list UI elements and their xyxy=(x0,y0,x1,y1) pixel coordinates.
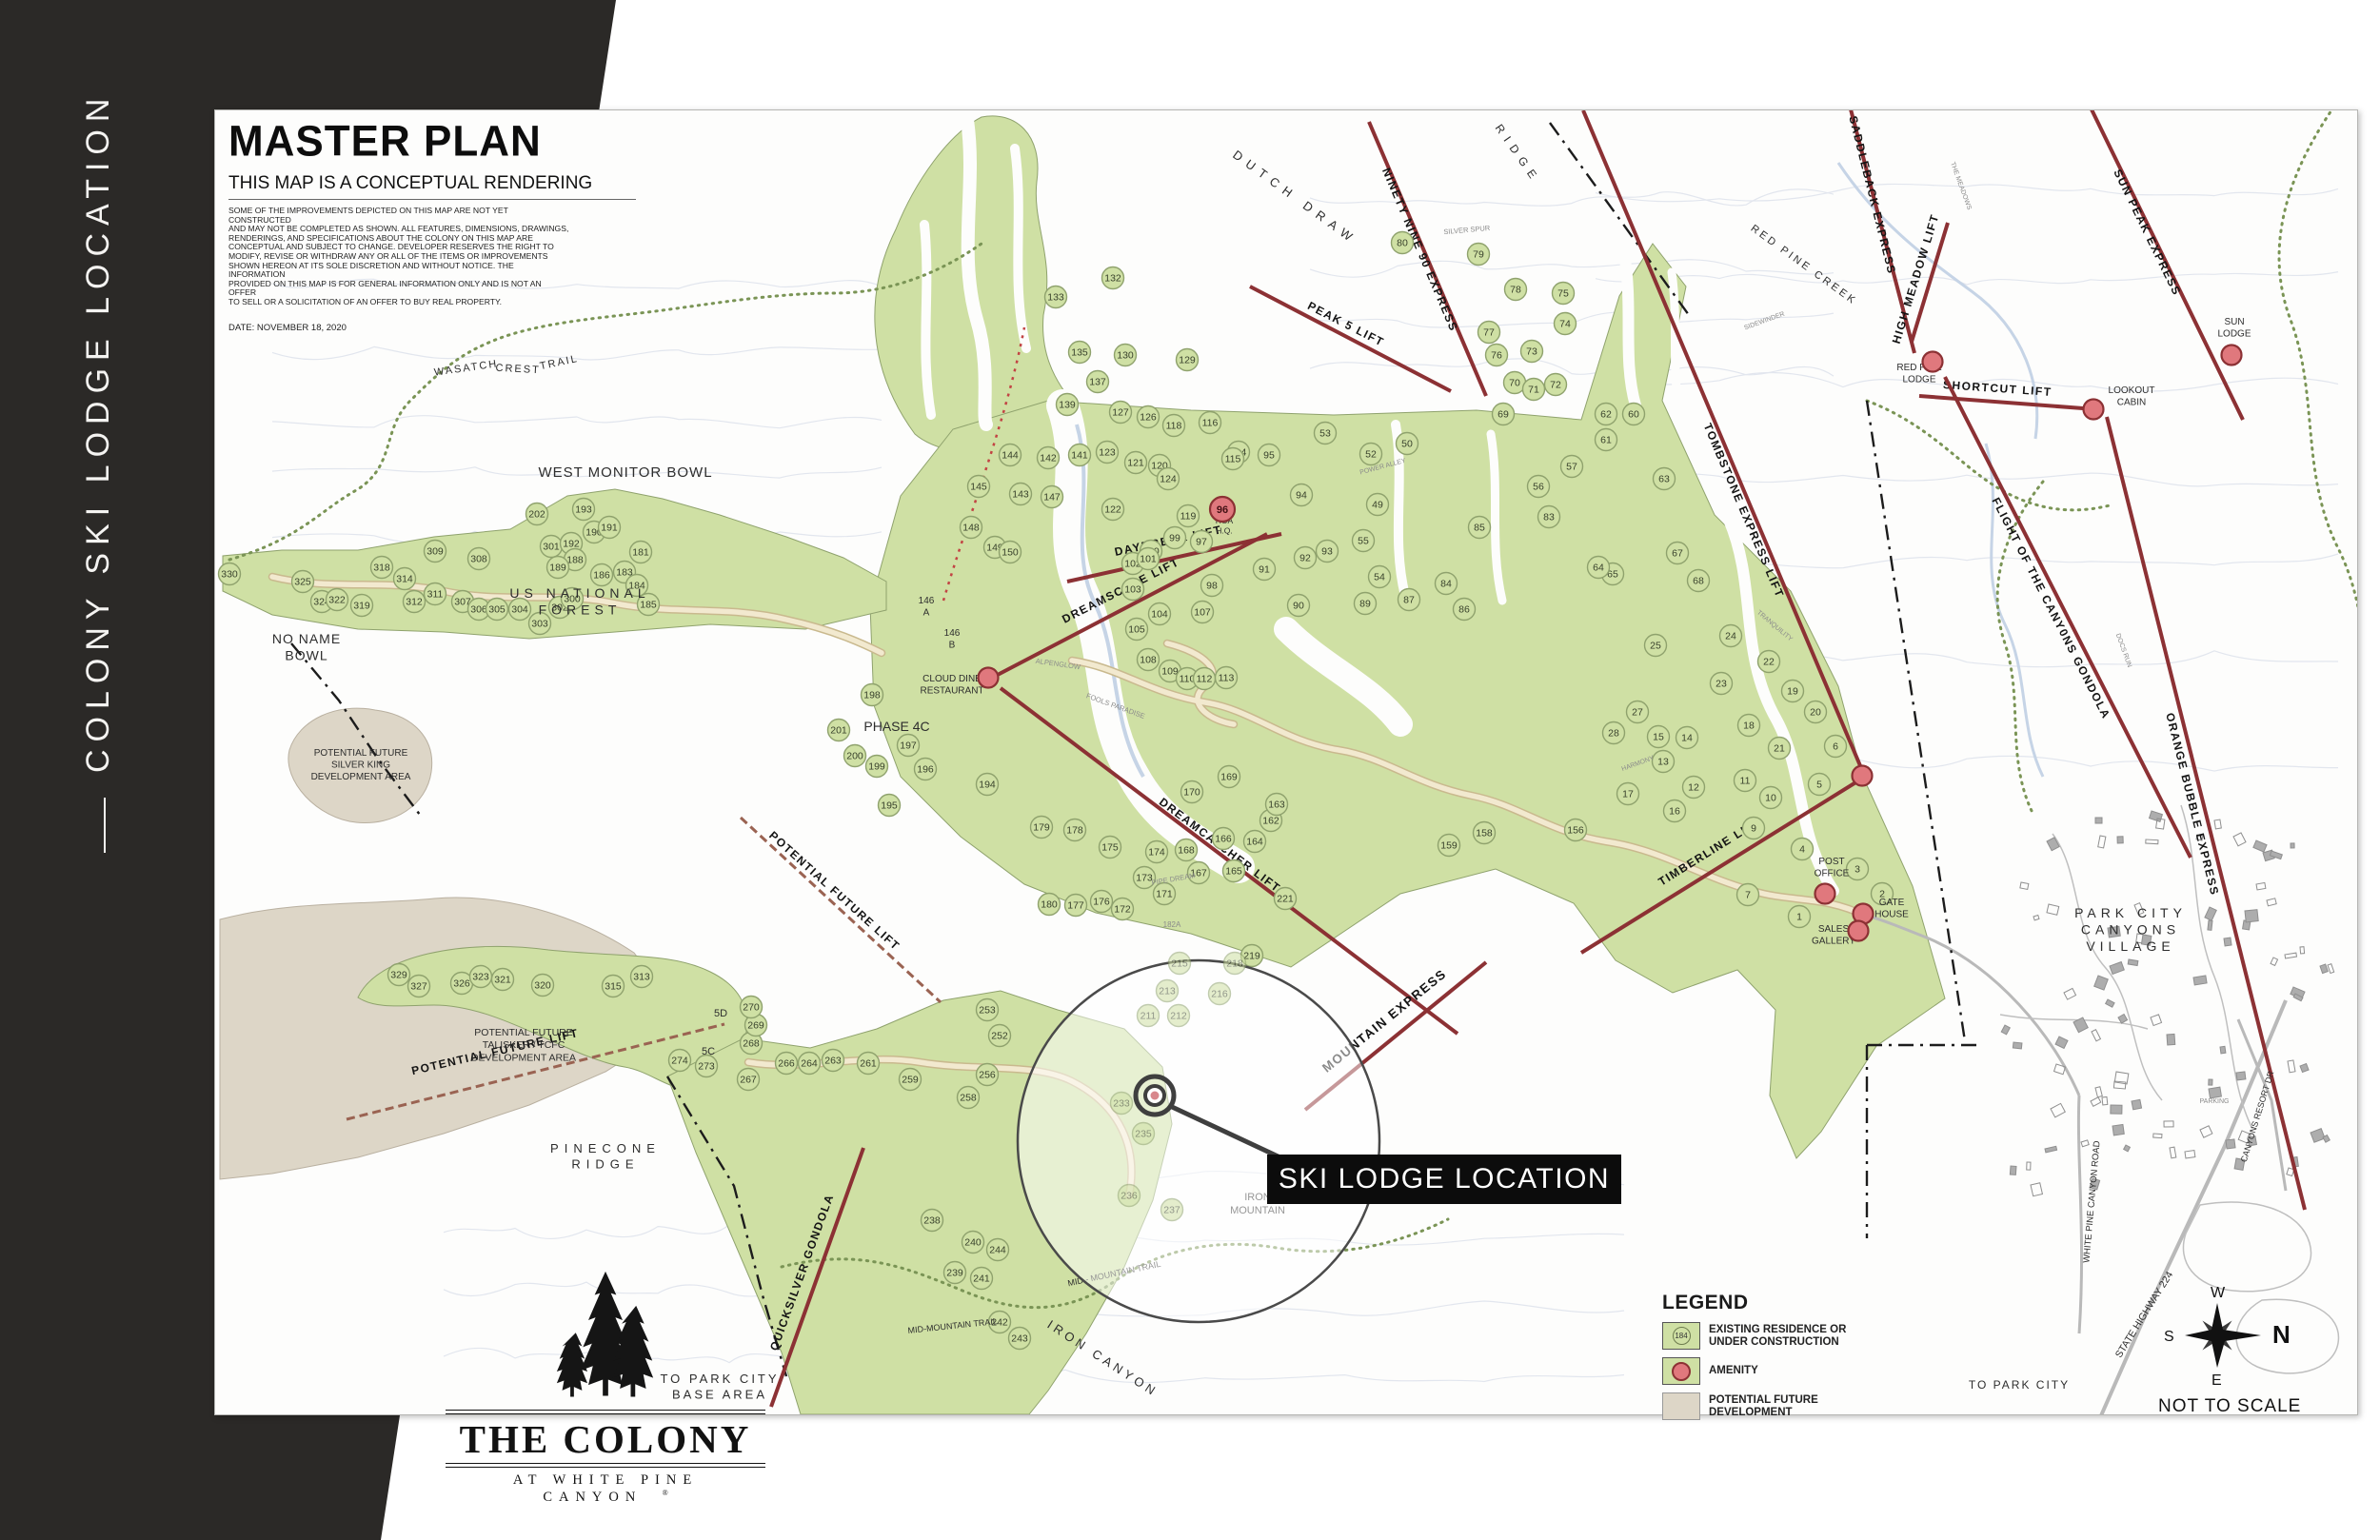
pine-trees-icon xyxy=(525,1270,686,1405)
svg-text:268: 268 xyxy=(743,1038,760,1050)
village-building xyxy=(2253,840,2267,852)
village-building xyxy=(2150,811,2163,821)
svg-text:175: 175 xyxy=(1101,842,1119,854)
svg-text:79: 79 xyxy=(1473,249,1484,261)
svg-text:221: 221 xyxy=(1277,894,1294,905)
lot-marker: 101 xyxy=(1138,548,1160,570)
lot-marker: 150 xyxy=(1000,542,1021,563)
svg-text:197: 197 xyxy=(900,740,917,752)
map-title: MASTER PLAN xyxy=(228,117,666,167)
village-building xyxy=(2064,988,2076,999)
village-building xyxy=(2200,1126,2212,1137)
svg-text:19: 19 xyxy=(1787,686,1798,698)
map-label: NO NAMEBOWL xyxy=(272,631,341,663)
lot-marker: 237 xyxy=(1161,1199,1183,1221)
village-building xyxy=(2288,1060,2295,1073)
lot-marker: 239 xyxy=(944,1262,966,1284)
map-label: RIDGE xyxy=(1493,122,1543,187)
svg-text:1: 1 xyxy=(1796,912,1802,923)
lot-marker: 57 xyxy=(1561,456,1583,478)
lot-marker: 12 xyxy=(1683,777,1705,799)
lot-marker: 304 xyxy=(509,599,531,621)
lot-marker: 97 xyxy=(1191,531,1213,553)
disclaimer-line: TO SELL OR A SOLICITATION OF AN OFFER TO… xyxy=(228,298,571,307)
village-building xyxy=(2112,1124,2124,1135)
legend-item: AMENITY xyxy=(1662,1357,1948,1385)
lot-marker: 23 xyxy=(1711,673,1733,695)
lift-label: PEAK 5 LIFT xyxy=(1305,299,1386,349)
svg-text:236: 236 xyxy=(1121,1191,1138,1202)
lot-marker: 15 xyxy=(1648,726,1670,748)
svg-text:233: 233 xyxy=(1113,1098,1130,1110)
svg-text:193: 193 xyxy=(575,504,592,516)
svg-text:14: 14 xyxy=(1681,733,1693,744)
village-building xyxy=(2193,976,2207,985)
svg-text:189: 189 xyxy=(549,563,566,574)
village-building xyxy=(2094,976,2109,990)
village-building xyxy=(2128,959,2138,966)
svg-text:241: 241 xyxy=(973,1273,990,1285)
svg-text:18: 18 xyxy=(1743,721,1755,732)
village-building xyxy=(2118,1015,2128,1024)
svg-text:147: 147 xyxy=(1043,492,1061,503)
map-label: LOOKOUTCABIN xyxy=(2109,385,2155,408)
svg-text:163: 163 xyxy=(1268,800,1285,811)
svg-text:177: 177 xyxy=(1067,900,1084,912)
contour-line xyxy=(1596,272,2338,286)
svg-text:170: 170 xyxy=(1183,787,1200,799)
lot-marker: 135 xyxy=(1069,342,1091,364)
svg-text:108: 108 xyxy=(1140,655,1157,666)
lift-label: SADDLEBACK EXPRESS xyxy=(1846,114,1898,275)
svg-text:273: 273 xyxy=(698,1061,715,1073)
lot-marker: 198 xyxy=(862,684,883,706)
disclaimer-line: PROVIDED ON THIS MAP IS FOR GENERAL INFO… xyxy=(228,280,571,298)
map-label: TRAIL xyxy=(539,353,580,372)
lot-marker: 264 xyxy=(799,1053,821,1075)
lot-marker: 118 xyxy=(1163,415,1185,437)
map-label: TO PARK CITY xyxy=(1969,1378,2070,1392)
lot-marker: 244 xyxy=(987,1239,1009,1261)
svg-text:309: 309 xyxy=(426,546,444,558)
svg-text:115: 115 xyxy=(1225,454,1241,465)
lot-marker: 320 xyxy=(532,975,554,997)
svg-text:E: E xyxy=(2211,1372,2222,1389)
lot-marker: 104 xyxy=(1149,603,1171,625)
svg-text:62: 62 xyxy=(1600,409,1612,421)
svg-text:237: 237 xyxy=(1163,1205,1180,1216)
lot-marker: 191 xyxy=(599,517,621,539)
lot-marker: 319 xyxy=(351,595,373,617)
svg-text:264: 264 xyxy=(801,1058,818,1070)
lot-marker: 215 xyxy=(1169,953,1191,975)
svg-text:195: 195 xyxy=(881,800,898,812)
map-label: CANYONS RESORT DR xyxy=(2239,1070,2276,1164)
svg-text:261: 261 xyxy=(860,1058,877,1070)
lot-marker: 119 xyxy=(1178,505,1200,527)
lot-marker: 193 xyxy=(573,499,595,521)
lot-marker: 113 xyxy=(1216,667,1238,689)
svg-text:10: 10 xyxy=(1765,793,1776,804)
lot-marker: 243 xyxy=(1009,1328,1031,1350)
lot-marker: 17 xyxy=(1617,783,1639,805)
lot-marker: 63 xyxy=(1654,468,1676,490)
lot-marker: 163 xyxy=(1266,794,1288,816)
village-building xyxy=(2027,1162,2031,1170)
lift-label: FLIGHT OF THE CANY0NS GONDOLA xyxy=(1989,495,2112,721)
lot-marker: 330 xyxy=(219,563,241,585)
lot-marker: 194 xyxy=(977,774,999,796)
svg-text:74: 74 xyxy=(1559,319,1571,330)
svg-text:24: 24 xyxy=(1725,631,1736,642)
svg-text:181: 181 xyxy=(632,547,649,559)
lot-marker: 315 xyxy=(603,976,625,997)
svg-text:56: 56 xyxy=(1533,482,1544,493)
svg-text:145: 145 xyxy=(970,482,987,493)
svg-text:49: 49 xyxy=(1372,500,1383,511)
lot-marker: 13 xyxy=(1653,751,1675,773)
map-date: DATE: NOVEMBER 18, 2020 xyxy=(228,323,666,333)
lot-marker: 259 xyxy=(900,1069,922,1091)
lot-marker: 7 xyxy=(1737,884,1759,906)
amenity-marker-post-office xyxy=(1815,884,1835,904)
lot-marker: 308 xyxy=(468,548,490,570)
svg-text:113: 113 xyxy=(1219,673,1235,684)
village-building xyxy=(2151,1015,2162,1026)
lot-marker: 312 xyxy=(404,591,426,613)
lot-marker: 123 xyxy=(1097,442,1119,464)
lot-marker: 325 xyxy=(292,571,314,593)
legend-sample-lot: 184 xyxy=(1673,1327,1691,1345)
village-building xyxy=(2117,837,2123,843)
svg-text:70: 70 xyxy=(1509,378,1520,389)
lot-marker: 323 xyxy=(470,966,492,988)
svg-text:23: 23 xyxy=(1716,679,1727,690)
lot-marker: 261 xyxy=(858,1053,880,1075)
svg-text:17: 17 xyxy=(1622,789,1634,800)
lot-marker: 84 xyxy=(1436,573,1458,595)
svg-text:99: 99 xyxy=(1169,533,1180,544)
svg-text:315: 315 xyxy=(605,981,622,993)
svg-text:W: W xyxy=(2211,1285,2226,1301)
lot-marker: 53 xyxy=(1315,423,1337,444)
svg-text:323: 323 xyxy=(472,972,489,983)
svg-text:27: 27 xyxy=(1632,707,1643,719)
svg-text:192: 192 xyxy=(563,539,580,550)
lot-marker: 5 xyxy=(1809,774,1831,796)
lot-marker: 132 xyxy=(1102,267,1124,289)
map-label: WHITE PINE CANYON ROAD xyxy=(2081,1140,2102,1263)
lot-marker: 314 xyxy=(394,568,416,590)
svg-text:211: 211 xyxy=(1140,1011,1157,1022)
lot-marker: 93 xyxy=(1317,541,1339,563)
lift-line xyxy=(741,818,941,1002)
svg-text:159: 159 xyxy=(1440,840,1458,852)
lot-marker: 144 xyxy=(1000,444,1021,466)
svg-text:132: 132 xyxy=(1104,273,1121,285)
svg-text:256: 256 xyxy=(979,1070,996,1081)
svg-text:95: 95 xyxy=(1263,450,1275,462)
lodge-area-zoom-circle xyxy=(1018,960,1379,1322)
lot-marker: 27 xyxy=(1627,701,1649,723)
legend-item-label: AMENITY xyxy=(1709,1365,1758,1377)
svg-text:311: 311 xyxy=(427,589,444,601)
svg-text:269: 269 xyxy=(747,1020,764,1032)
svg-text:218: 218 xyxy=(1226,958,1243,970)
map-label: RED PINE CREEK xyxy=(1749,223,1859,307)
village-building xyxy=(2320,964,2328,974)
village-building xyxy=(2209,1079,2212,1085)
lot-marker: 233 xyxy=(1111,1093,1133,1115)
village-building xyxy=(2167,1034,2175,1045)
village-building xyxy=(2020,882,2029,889)
map-label: POSTOFFICE xyxy=(1815,857,1850,879)
lot-marker: 14 xyxy=(1676,727,1698,749)
svg-text:301: 301 xyxy=(543,542,560,553)
lot-marker: 318 xyxy=(371,557,393,579)
village-building xyxy=(2031,1183,2042,1196)
logo-rule-top-1 xyxy=(446,1410,765,1411)
svg-text:216: 216 xyxy=(1211,989,1228,1000)
lot-marker: 79 xyxy=(1468,244,1490,266)
lot-marker: 50 xyxy=(1397,433,1418,455)
lot-marker: 62 xyxy=(1596,404,1617,425)
lot-marker: 121 xyxy=(1125,452,1147,474)
lift-line xyxy=(1919,396,2083,408)
lot-marker: 68 xyxy=(1688,570,1710,592)
lot-marker: 311 xyxy=(425,583,446,605)
village-building xyxy=(2153,1134,2162,1138)
village-building xyxy=(2098,836,2106,848)
village-building xyxy=(2111,1105,2122,1114)
village-building xyxy=(2001,1025,2010,1035)
svg-text:329: 329 xyxy=(390,970,407,981)
lot-marker: 74 xyxy=(1555,313,1577,335)
svg-text:6: 6 xyxy=(1833,741,1838,753)
map-label: 182A xyxy=(1163,920,1181,929)
svg-text:71: 71 xyxy=(1528,385,1539,396)
svg-text:NOT TO SCALE: NOT TO SCALE xyxy=(2158,1396,2301,1414)
amenity-marker-sales-gallery xyxy=(1849,921,1869,941)
lot-marker: 112 xyxy=(1194,668,1216,690)
lot-marker: 52 xyxy=(1360,444,1382,465)
svg-text:325: 325 xyxy=(294,577,311,588)
svg-text:116: 116 xyxy=(1202,418,1219,429)
svg-text:84: 84 xyxy=(1440,579,1452,590)
lot-marker: 122 xyxy=(1102,499,1124,521)
logo-rule-top-2 xyxy=(446,1413,765,1414)
lot-marker: 22 xyxy=(1758,651,1780,673)
village-building xyxy=(2208,920,2212,930)
sidebar-vertical-title: COLONY SKI LODGE LOCATION xyxy=(80,240,117,773)
lot-marker: 159 xyxy=(1438,835,1460,857)
svg-text:103: 103 xyxy=(1124,584,1141,596)
village-building xyxy=(2226,1139,2235,1149)
lot-marker: 141 xyxy=(1069,444,1091,466)
svg-text:164: 164 xyxy=(1246,837,1263,848)
lift-line xyxy=(1945,377,2191,858)
amenity-marker-lookout-cabin xyxy=(2084,400,2104,420)
ski-lodge-callout-label: SKI LODGE LOCATION xyxy=(1279,1163,1610,1195)
svg-text:172: 172 xyxy=(1114,904,1131,916)
svg-text:28: 28 xyxy=(1608,728,1619,740)
lot-marker: 238 xyxy=(922,1210,943,1232)
map-subtitle: THIS MAP IS A CONCEPTUAL RENDERING xyxy=(228,173,666,194)
lift-label: ORANGE BUBBLE EXPRESS xyxy=(2163,712,2221,898)
lot-marker: 98 xyxy=(1201,575,1223,597)
lot-marker: 24 xyxy=(1720,625,1742,647)
lot-marker: 236 xyxy=(1119,1185,1140,1207)
svg-text:104: 104 xyxy=(1151,609,1168,621)
village-building xyxy=(2170,1147,2176,1158)
lot-marker: 274 xyxy=(669,1050,691,1072)
village-building xyxy=(2051,1103,2065,1116)
svg-text:166: 166 xyxy=(1215,834,1232,845)
svg-text:129: 129 xyxy=(1179,355,1196,366)
svg-text:105: 105 xyxy=(1128,624,1145,636)
svg-text:16: 16 xyxy=(1669,806,1680,818)
svg-text:196: 196 xyxy=(917,764,934,776)
sidebar-rule xyxy=(104,798,106,853)
svg-text:139: 139 xyxy=(1059,400,1076,411)
lot-marker: 64 xyxy=(1588,557,1610,579)
svg-text:267: 267 xyxy=(740,1075,757,1086)
lot-marker: 168 xyxy=(1176,839,1198,861)
lot-marker: 170 xyxy=(1181,781,1203,803)
lot-marker: 197 xyxy=(898,735,920,757)
lot-marker: 211 xyxy=(1138,1005,1160,1027)
legend-item: 184EXISTING RESIDENCE OR UNDER CONSTRUCT… xyxy=(1662,1322,1948,1350)
lot-marker: 85 xyxy=(1469,517,1491,539)
svg-text:212: 212 xyxy=(1170,1011,1187,1022)
lot-marker: 69 xyxy=(1493,404,1515,425)
svg-text:258: 258 xyxy=(960,1093,977,1104)
lot-marker: 305 xyxy=(486,599,508,621)
lot-marker: 72 xyxy=(1545,374,1567,396)
lot-marker: 199 xyxy=(866,756,888,778)
lift-label: SHORTCUT LIFT xyxy=(1943,378,2053,399)
svg-text:180: 180 xyxy=(1041,899,1058,911)
lot-marker: 49 xyxy=(1367,494,1389,516)
svg-text:98: 98 xyxy=(1206,581,1218,592)
svg-text:143: 143 xyxy=(1012,489,1029,501)
svg-text:165: 165 xyxy=(1225,866,1242,878)
lot-marker: 241 xyxy=(971,1268,993,1290)
village-building xyxy=(2124,1145,2131,1152)
village-building xyxy=(2092,1030,2100,1041)
village-building xyxy=(2271,958,2277,965)
svg-text:25: 25 xyxy=(1650,641,1661,652)
svg-text:72: 72 xyxy=(1550,380,1561,391)
map-label: CLOUD DINERESTAURANT xyxy=(920,674,983,697)
village-building xyxy=(2146,839,2158,844)
lot-marker: 77 xyxy=(1478,322,1500,344)
svg-text:303: 303 xyxy=(531,619,548,630)
svg-text:124: 124 xyxy=(1160,474,1177,485)
lot-marker: 139 xyxy=(1057,394,1079,416)
svg-text:60: 60 xyxy=(1628,409,1639,421)
lot-marker: 195 xyxy=(879,795,901,817)
map-label: 5C xyxy=(702,1046,715,1057)
lot-marker: 127 xyxy=(1110,402,1132,424)
lot-marker: 124 xyxy=(1158,468,1180,490)
svg-text:20: 20 xyxy=(1810,707,1821,719)
svg-text:121: 121 xyxy=(1127,458,1144,469)
lot-marker: 25 xyxy=(1645,635,1667,657)
lot-marker: 67 xyxy=(1667,543,1689,564)
svg-text:80: 80 xyxy=(1397,238,1408,249)
lot-marker: 180 xyxy=(1039,894,1061,916)
lot-marker: 179 xyxy=(1031,817,1053,839)
svg-text:330: 330 xyxy=(221,569,238,581)
svg-text:259: 259 xyxy=(902,1075,919,1086)
lot-marker: 71 xyxy=(1523,379,1545,401)
lot-marker: 181 xyxy=(630,542,652,563)
svg-text:185: 185 xyxy=(640,600,657,611)
svg-text:91: 91 xyxy=(1259,564,1270,576)
lot-marker: 75 xyxy=(1553,283,1575,305)
svg-text:126: 126 xyxy=(1140,412,1157,424)
svg-text:127: 127 xyxy=(1112,407,1129,419)
svg-text:238: 238 xyxy=(923,1215,941,1227)
title-rule xyxy=(228,199,636,200)
lot-marker: 115 xyxy=(1222,448,1244,470)
lot-marker: 137 xyxy=(1087,371,1109,393)
lot-marker: 270 xyxy=(741,997,763,1018)
svg-text:148: 148 xyxy=(962,523,980,534)
lot-marker: 216 xyxy=(1209,983,1231,1005)
lot-marker: 309 xyxy=(425,541,446,563)
lot-marker: 147 xyxy=(1041,486,1063,508)
registered-mark: ® xyxy=(663,1489,668,1497)
lot-marker: 9 xyxy=(1743,818,1765,839)
svg-text:96: 96 xyxy=(1217,504,1228,516)
svg-text:243: 243 xyxy=(1011,1333,1028,1345)
lot-marker: 91 xyxy=(1254,559,1276,581)
svg-text:319: 319 xyxy=(353,601,370,612)
svg-text:S: S xyxy=(2164,1329,2174,1345)
legend-swatch-lot: 184 xyxy=(1662,1322,1700,1350)
lot-marker: 178 xyxy=(1064,819,1086,841)
lot-marker: 20 xyxy=(1805,701,1827,723)
village-building xyxy=(2164,1121,2173,1127)
svg-text:89: 89 xyxy=(1359,599,1371,610)
map-label: DOCS RUN xyxy=(2114,633,2132,668)
svg-text:77: 77 xyxy=(1483,327,1495,339)
amenity-marker-cloud-dine xyxy=(979,668,999,688)
lot-marker: 143 xyxy=(1010,484,1032,505)
village-building xyxy=(2291,843,2294,848)
legend-item-label: EXISTING RESIDENCE OR UNDER CONSTRUCTION xyxy=(1709,1324,1846,1348)
map-label: PHASE 4C xyxy=(863,719,929,734)
legend: LEGEND 184EXISTING RESIDENCE OR UNDER CO… xyxy=(1662,1292,1948,1428)
map-label: PARKING xyxy=(2200,1098,2230,1105)
map-label: GATEHOUSE xyxy=(1874,898,1909,920)
village-building xyxy=(2256,882,2266,889)
lot-marker: 19 xyxy=(1782,681,1804,702)
svg-text:9: 9 xyxy=(1751,823,1756,835)
svg-text:5: 5 xyxy=(1816,780,1822,791)
lot-marker: 186 xyxy=(591,564,613,586)
lot-marker: 321 xyxy=(492,969,514,991)
disclaimer-line: SHOWN HEREON AT ITS SOLE DISCRETION AND … xyxy=(228,262,571,280)
lot-marker: 56 xyxy=(1528,476,1550,498)
village-building xyxy=(2233,833,2246,846)
lot-marker: 11 xyxy=(1735,770,1756,792)
lot-marker: 116 xyxy=(1200,412,1221,434)
svg-text:158: 158 xyxy=(1476,828,1493,839)
village-building xyxy=(2010,1166,2016,1175)
